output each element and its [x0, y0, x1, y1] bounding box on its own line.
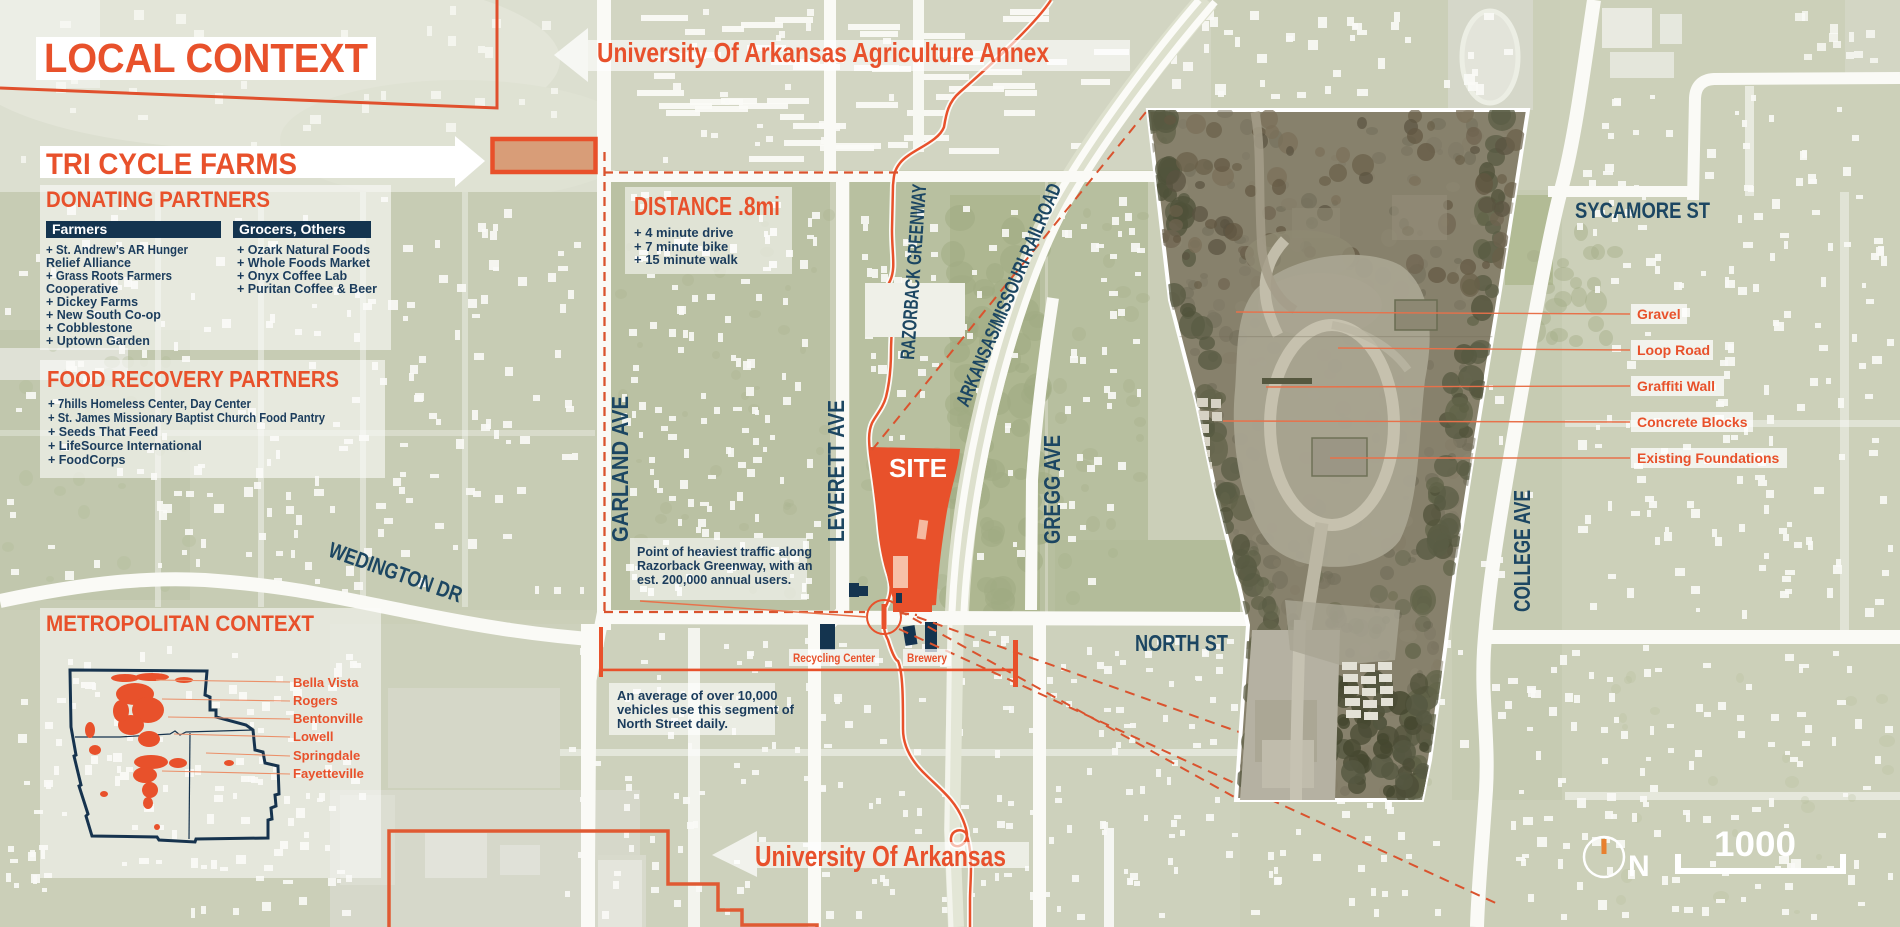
svg-text:Recycling Center: Recycling Center: [793, 651, 875, 665]
svg-text:COLLEGE AVE: COLLEGE AVE: [1509, 490, 1535, 612]
svg-text:Graffiti Wall: Graffiti Wall: [1637, 378, 1715, 394]
svg-text:Cooperative: Cooperative: [46, 282, 118, 296]
svg-text:Bella Vista: Bella Vista: [293, 675, 359, 690]
svg-text:Gravel: Gravel: [1637, 306, 1681, 322]
svg-text:+ St. Andrew’s AR Hunger: + St. Andrew’s AR Hunger: [46, 243, 188, 257]
svg-text:DISTANCE: DISTANCE: [634, 191, 732, 221]
svg-text:SYCAMORE ST: SYCAMORE ST: [1575, 198, 1710, 223]
svg-text:.8mi: .8mi: [738, 191, 780, 221]
svg-text:GREGG AVE: GREGG AVE: [1039, 435, 1065, 544]
svg-text:Farmers: Farmers: [52, 221, 107, 237]
svg-text:Concrete Blocks: Concrete Blocks: [1637, 414, 1748, 430]
svg-text:Fayetteville: Fayetteville: [293, 766, 364, 781]
svg-text:+ Puritan Coffee & Beer: + Puritan Coffee & Beer: [237, 282, 377, 296]
svg-text:Brewery: Brewery: [907, 651, 947, 665]
svg-text:1000: 1000: [1714, 825, 1796, 864]
svg-text:DONATING PARTNERS: DONATING PARTNERS: [46, 187, 270, 212]
svg-text:Springdale: Springdale: [293, 748, 360, 763]
svg-text:+ FoodCorps: + FoodCorps: [48, 453, 125, 467]
svg-text:+ Seeds That Feed: + Seeds That Feed: [48, 425, 158, 439]
svg-text:SITE: SITE: [889, 453, 947, 483]
svg-text:+ Ozark Natural Foods: + Ozark Natural Foods: [237, 243, 370, 257]
svg-text:+ Whole Foods Market: + Whole Foods Market: [237, 256, 371, 270]
svg-text:+ Onyx Coffee Lab: + Onyx Coffee Lab: [237, 269, 347, 283]
svg-text:Lowell: Lowell: [293, 729, 333, 744]
svg-text:Grocers, Others: Grocers, Others: [239, 221, 346, 237]
svg-text:+ 7hills Homeless Center, Day: + 7hills Homeless Center, Day Center: [48, 397, 251, 411]
svg-text:Razorback Greenway, with an: Razorback Greenway, with an: [637, 559, 813, 573]
svg-text:University Of Arkansas Agricul: University Of Arkansas Agriculture Annex: [597, 37, 1049, 68]
svg-text:LOCAL CONTEXT: LOCAL CONTEXT: [44, 35, 368, 81]
svg-text:North Street daily.: North Street daily.: [617, 716, 728, 731]
svg-text:+ Dickey Farms: + Dickey Farms: [46, 295, 138, 309]
svg-text:An average of over 10,000: An average of over 10,000: [617, 688, 777, 703]
svg-text:Existing Foundations: Existing Foundations: [1637, 450, 1780, 466]
svg-text:+ 4 minute drive: + 4 minute drive: [634, 225, 733, 240]
svg-text:vehicles use this segment of: vehicles use this segment of: [617, 702, 795, 717]
svg-text:+ New South Co-op: + New South Co-op: [46, 308, 161, 322]
svg-text:TRI CYCLE FARMS: TRI CYCLE FARMS: [46, 148, 297, 181]
svg-text:Bentonville: Bentonville: [293, 711, 363, 726]
svg-text:N: N: [1628, 850, 1650, 883]
svg-text:Point of heaviest traffic alon: Point of heaviest traffic along: [637, 545, 812, 559]
svg-text:+ LifeSource International: + LifeSource International: [48, 439, 202, 453]
svg-text:Relief Alliance: Relief Alliance: [46, 256, 131, 270]
svg-text:LEVERETT AVE: LEVERETT AVE: [823, 400, 849, 542]
svg-text:GARLAND AVE: GARLAND AVE: [607, 396, 633, 542]
svg-text:METROPOLITAN CONTEXT: METROPOLITAN CONTEXT: [46, 611, 315, 636]
svg-text:+ Grass Roots Farmers: + Grass Roots Farmers: [46, 269, 172, 283]
svg-text:+ Cobblestone: + Cobblestone: [46, 321, 133, 335]
svg-text:University Of Arkansas: University Of Arkansas: [755, 841, 1006, 873]
svg-text:+ Uptown Garden: + Uptown Garden: [46, 334, 150, 348]
svg-text:NORTH ST: NORTH ST: [1135, 630, 1228, 656]
svg-text:Rogers: Rogers: [293, 693, 338, 708]
svg-text:Loop Road: Loop Road: [1637, 342, 1710, 358]
svg-text:FOOD RECOVERY PARTNERS: FOOD RECOVERY PARTNERS: [47, 366, 339, 392]
svg-text:est. 200,000 annual users.: est. 200,000 annual users.: [637, 573, 791, 587]
svg-text:+ 15 minute walk: + 15 minute walk: [634, 252, 738, 267]
svg-text:+ St. James Missionary Baptist: + St. James Missionary Baptist Church Fo…: [48, 411, 325, 425]
